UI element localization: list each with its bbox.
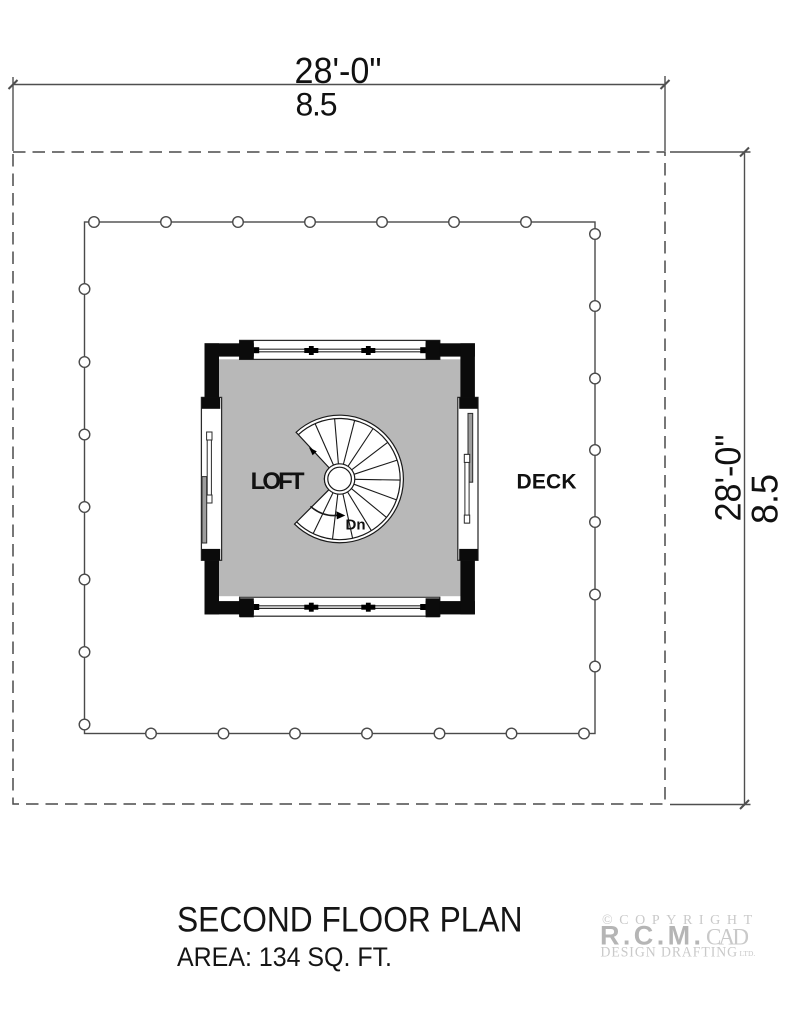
svg-text:8.5: 8.5 — [296, 87, 338, 123]
svg-text:Dn: Dn — [346, 517, 366, 534]
svg-text:SECOND FLOOR PLAN: SECOND FLOOR PLAN — [177, 901, 523, 940]
svg-text:8.5: 8.5 — [745, 474, 786, 524]
svg-text:28'-0": 28'-0" — [295, 50, 382, 91]
svg-text:DESIGN DRAFTING: DESIGN DRAFTING — [601, 945, 739, 961]
svg-text:28'-0": 28'-0" — [708, 435, 749, 522]
svg-text:AREA: 134 SQ. FT.: AREA: 134 SQ. FT. — [177, 942, 392, 972]
svg-text:LTD.: LTD. — [740, 949, 756, 958]
svg-text:LOFT: LOFT — [251, 468, 305, 495]
svg-text:DECK: DECK — [517, 471, 577, 494]
